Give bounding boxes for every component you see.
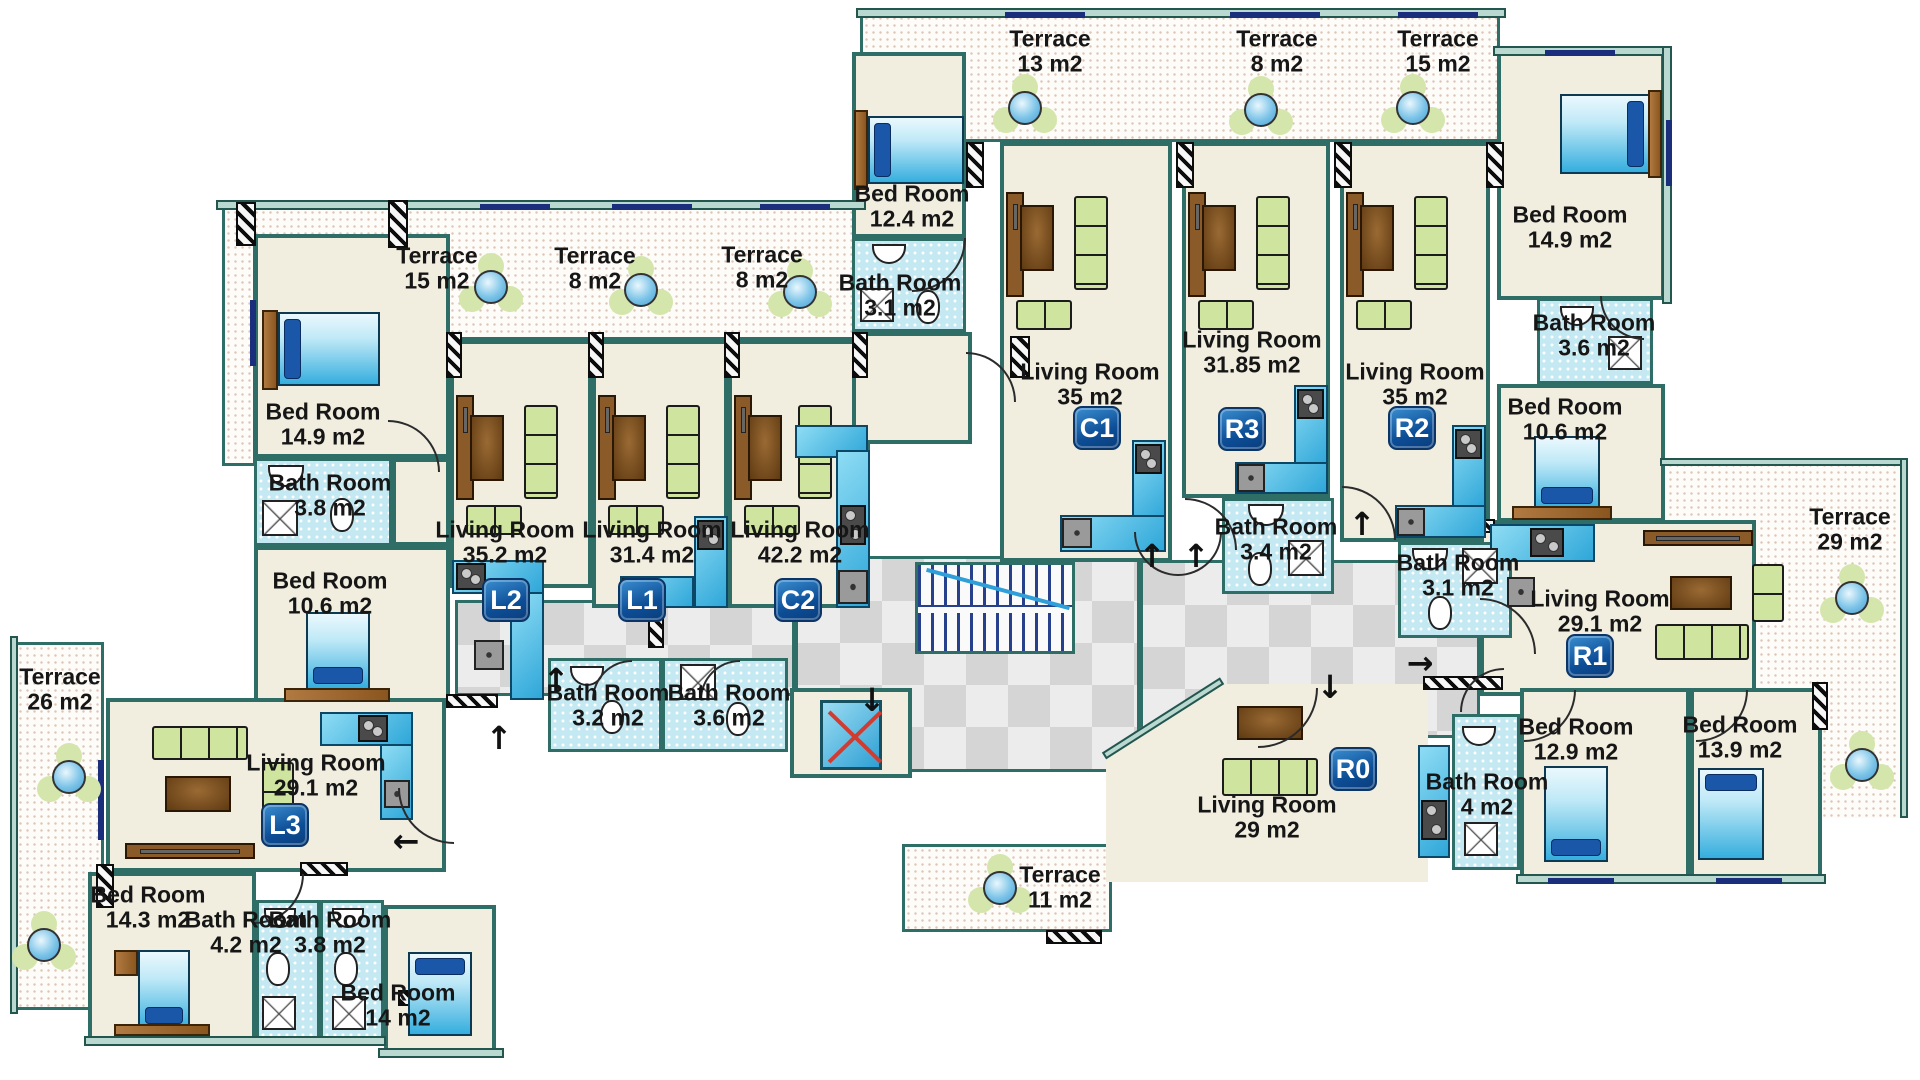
wall-hatch	[1334, 142, 1352, 188]
bed-headboard	[262, 310, 278, 390]
shower-icon	[1464, 822, 1498, 856]
room-label: Bath Room3.8 m2	[269, 908, 392, 959]
room-label: Bath Room3.4 m2	[1215, 515, 1338, 566]
coffee-table	[748, 415, 782, 481]
bed-headboard	[1512, 506, 1612, 520]
room-label: Bed Room13.9 m2	[1683, 713, 1798, 764]
room-label: Terrace8 m2	[1236, 27, 1317, 78]
bed-icon	[1544, 766, 1608, 862]
table-chairs-icon	[474, 270, 508, 304]
coffee-table	[1202, 205, 1236, 271]
wall-hatch	[588, 332, 604, 378]
room-label: Living Room42.2 m2	[730, 518, 869, 569]
room-label: Living Room29.1 m2	[1530, 587, 1669, 638]
coffee-table	[1020, 205, 1054, 271]
window-marker	[1548, 878, 1614, 884]
wall-hatch	[1486, 142, 1504, 188]
wall-segment	[1660, 458, 1908, 466]
shower-icon	[262, 996, 296, 1030]
room-label: Living Room35 m2	[1020, 360, 1159, 411]
entry-arrow-right: →	[1407, 647, 1434, 679]
table-chairs-icon	[983, 871, 1017, 905]
wall-segment	[10, 636, 18, 1014]
entry-arrow-up: ↑	[1183, 540, 1210, 572]
wall-hatch	[724, 332, 740, 378]
window-marker	[1666, 120, 1672, 186]
room-label: Terrace15 m2	[396, 244, 477, 295]
sofa	[666, 405, 700, 499]
window-marker	[98, 760, 104, 840]
stove-icon	[358, 715, 388, 742]
fridge-icon	[1237, 464, 1265, 492]
floor-plan: ↑ ↑ ↑ ↑ ↑ ↓ ↓ → ← Terrace15 m2 Terrace8 …	[0, 0, 1920, 1080]
fridge-icon	[1062, 518, 1092, 548]
sofa	[1356, 300, 1412, 330]
stove-icon	[1135, 444, 1162, 474]
room-label: Bath Room3.1 m2	[1397, 551, 1520, 602]
wall-hatch	[236, 202, 256, 246]
stove-icon	[1455, 429, 1482, 459]
bed-icon	[1534, 436, 1600, 510]
unit-badge-l2: L2	[482, 578, 530, 622]
room-label: Bed Room10.6 m2	[1508, 395, 1623, 446]
room-bedroom-14-9-right	[1497, 52, 1665, 300]
coffee-table	[1360, 205, 1394, 271]
room-label: Living Room31.85 m2	[1182, 328, 1321, 379]
bed-icon	[138, 950, 190, 1030]
table-chairs-icon	[1008, 91, 1042, 125]
entry-arrow-left: ←	[393, 825, 420, 857]
coffee-table	[1670, 576, 1732, 610]
unit-badge-l1: L1	[618, 578, 666, 622]
bed-icon	[306, 612, 370, 690]
bed-icon	[1698, 768, 1764, 860]
unit-badge-c2: C2	[774, 578, 822, 622]
window-marker	[480, 204, 550, 210]
unit-badge-l3: L3	[261, 803, 309, 847]
sofa	[1752, 564, 1784, 622]
entry-arrow-up: ↑	[543, 664, 570, 696]
wall-hatch	[388, 200, 408, 248]
wall-hatch	[1812, 682, 1828, 730]
wall-hatch	[1176, 142, 1194, 188]
window-marker	[1398, 12, 1478, 18]
room-label: Living Room35.2 m2	[435, 518, 574, 569]
room-label: Bath Room4 m2	[1426, 770, 1549, 821]
window-marker	[1716, 878, 1782, 884]
bed-icon	[868, 116, 964, 184]
coffee-table	[470, 415, 504, 481]
hall-top	[852, 332, 972, 444]
wall-hatch	[446, 332, 462, 378]
room-label: Bed Room12.9 m2	[1519, 715, 1634, 766]
room-label: Living Room31.4 m2	[582, 518, 721, 569]
room-label: Bath Room3.8 m2	[269, 471, 392, 522]
bed-headboard	[854, 110, 868, 190]
entry-arrow-up: ↑	[486, 722, 513, 754]
sofa	[1016, 300, 1072, 330]
room-label: Terrace8 m2	[721, 243, 802, 294]
coffee-table	[165, 776, 231, 812]
window-marker	[760, 204, 830, 210]
sofa	[1414, 196, 1448, 290]
table-chairs-icon	[1396, 91, 1430, 125]
unit-badge-r3: R3	[1218, 407, 1266, 451]
window-marker	[1005, 12, 1085, 18]
room-label: Bed Room14.9 m2	[1513, 203, 1628, 254]
wall-segment	[84, 1036, 386, 1046]
unit-badge-r2: R2	[1388, 406, 1436, 450]
bed-icon	[278, 312, 380, 386]
room-label: Bath Room3.1 m2	[839, 271, 962, 322]
window-marker	[1230, 12, 1320, 18]
table-chairs-icon	[1244, 93, 1278, 127]
unit-badge-c1: C1	[1073, 406, 1121, 450]
sofa	[1222, 758, 1318, 796]
bed-headboard	[114, 1024, 210, 1036]
wall-hatch	[446, 694, 498, 708]
wall-segment	[1900, 458, 1908, 818]
unit-badge-r1: R1	[1566, 634, 1614, 678]
table-chairs-icon	[27, 928, 61, 962]
room-label: Living Room29 m2	[1197, 793, 1336, 844]
room-label: Bath Room3.6 m2	[668, 681, 791, 732]
bed-headboard	[284, 688, 390, 702]
window-marker	[612, 204, 692, 210]
table-chairs-icon	[1835, 581, 1869, 615]
wall-hatch	[1046, 930, 1102, 944]
room-label: Terrace11 m2	[1019, 863, 1100, 914]
room-label: Terrace13 m2	[1009, 27, 1090, 78]
room-label: Terrace15 m2	[1397, 27, 1478, 78]
room-label: Terrace29 m2	[1809, 505, 1890, 556]
room-label: Bed Room14.9 m2	[266, 400, 381, 451]
fridge-icon	[474, 640, 504, 670]
room-label: Bath Room3.6 m2	[1533, 311, 1656, 362]
unit-badge-r0: R0	[1329, 747, 1377, 791]
entry-arrow-down: ↓	[859, 684, 886, 716]
nightstand	[114, 950, 138, 976]
wall-hatch	[852, 332, 868, 378]
room-label: Living Room29.1 m2	[246, 751, 385, 802]
room-label: Bed Room10.6 m2	[273, 569, 388, 620]
coffee-table	[612, 415, 646, 481]
stove-icon	[1297, 389, 1324, 419]
bed-headboard	[1648, 90, 1662, 178]
fridge-icon	[838, 570, 868, 604]
room-label: Living Room35 m2	[1345, 360, 1484, 411]
table-chairs-icon	[1845, 748, 1879, 782]
room-label: Terrace26 m2	[19, 665, 100, 716]
table-chairs-icon	[52, 760, 86, 794]
sofa	[152, 726, 248, 760]
stove-icon	[1530, 528, 1564, 557]
staircase	[915, 562, 1075, 654]
wall-hatch	[300, 862, 348, 876]
window-marker	[1545, 50, 1615, 56]
entry-arrow-up: ↑	[1139, 540, 1166, 572]
entry-arrow-down: ↓	[1317, 671, 1344, 703]
room-label: Bed Room14 m2	[341, 981, 456, 1032]
sofa	[1256, 196, 1290, 290]
wall-segment	[378, 1048, 504, 1058]
room-label: Terrace8 m2	[554, 244, 635, 295]
entry-arrow-up: ↑	[1349, 508, 1376, 540]
bed-icon	[1560, 94, 1650, 174]
sofa	[1074, 196, 1108, 290]
tv-console	[1643, 530, 1753, 546]
room-label: Bed Room12.4 m2	[855, 182, 970, 233]
window-marker	[250, 300, 256, 366]
fridge-icon	[1397, 508, 1425, 536]
sofa	[524, 405, 558, 499]
tv-console	[125, 843, 255, 859]
sofa	[1198, 300, 1254, 330]
